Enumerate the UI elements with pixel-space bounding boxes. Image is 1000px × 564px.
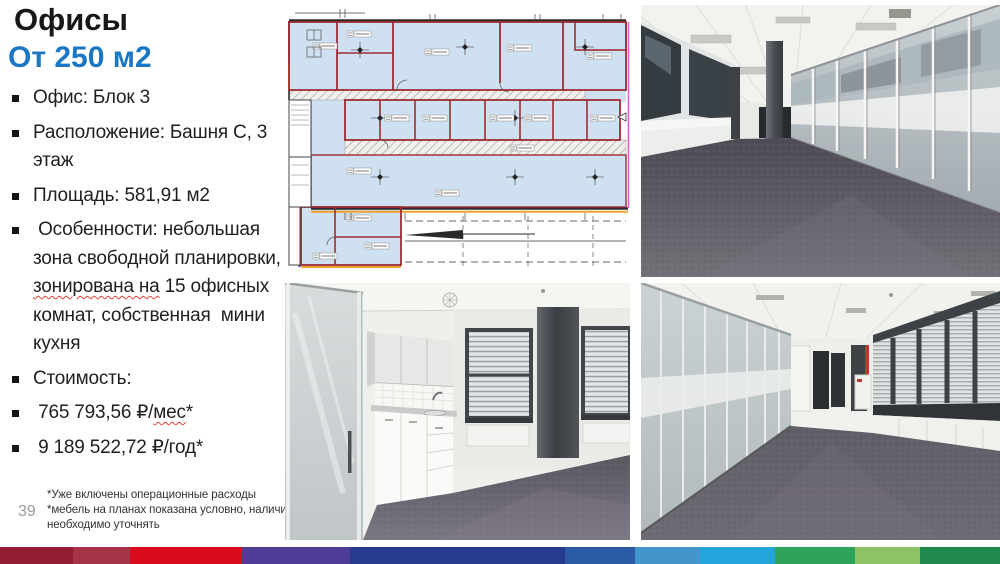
stripe-segment: [775, 547, 855, 564]
footnote: *Уже включены операционные расходы *мебе…: [47, 488, 297, 533]
bullet-item-price-label: Стоимость:: [10, 365, 288, 394]
bullet-text: 765 793,56 ₽/мес*: [33, 399, 193, 428]
bullet-text: Особенности: небольшая зона свободной пл…: [33, 216, 288, 359]
bullet-marker: [12, 95, 19, 102]
bullet-marker: [12, 445, 19, 452]
page-subtitle: От 250 м2: [8, 41, 152, 75]
bullet-item-area: Площадь: 581,91 м2: [10, 182, 288, 211]
kitchen-photo: [285, 283, 630, 540]
bullet-text: Стоимость:: [33, 365, 131, 394]
bullet-marker: [12, 376, 19, 383]
bullet-item-office: Офис: Блок 3: [10, 84, 288, 113]
page-number: 39: [18, 503, 36, 521]
bullet-item-features: Особенности: небольшая зона свободной пл…: [10, 216, 288, 359]
bullet-item-location: Расположение: Башня С, 3 этаж: [10, 119, 288, 176]
bullet-item-price-year: 9 189 522,72 ₽/год*: [10, 434, 288, 463]
slide: Офисы От 250 м2 Офис: Блок 3 Расположени…: [0, 0, 1000, 564]
stripe-segment: [350, 547, 565, 564]
bullet-text: Площадь: 581,91 м2: [33, 182, 210, 211]
bullet-text: Расположение: Башня С, 3 этаж: [33, 119, 288, 176]
bullet-marker: [12, 130, 19, 137]
stripe-segment: [130, 547, 242, 564]
floor-plan-image: [285, 5, 630, 280]
page-title: Офисы: [14, 2, 128, 38]
footnote-line: *Уже включены операционные расходы: [47, 488, 297, 503]
stripe-segment: [73, 547, 130, 564]
stripe-segment: [0, 547, 73, 564]
bullet-marker: [12, 227, 19, 234]
bullet-text: Офис: Блок 3: [33, 84, 150, 113]
stripe-segment: [700, 547, 775, 564]
bullet-marker: [12, 193, 19, 200]
footnote-line: *мебель на планах показана условно, нали…: [47, 503, 297, 533]
stripe-segment: [565, 547, 635, 564]
stripe-segment: [635, 547, 700, 564]
bullet-list: Офис: Блок 3 Расположение: Башня С, 3 эт…: [10, 84, 288, 468]
bullet-marker: [12, 410, 19, 417]
stripe-segment: [242, 547, 350, 564]
office-photo-bottom-right: [641, 283, 1000, 540]
stripe-segment: [855, 547, 920, 564]
bullet-item-price-month: 765 793,56 ₽/мес*: [10, 399, 288, 428]
office-photo-top-right: [641, 5, 1000, 277]
footer-color-stripe: [0, 547, 1000, 564]
stripe-segment: [920, 547, 1000, 564]
bullet-text: 9 189 522,72 ₽/год*: [33, 434, 203, 463]
